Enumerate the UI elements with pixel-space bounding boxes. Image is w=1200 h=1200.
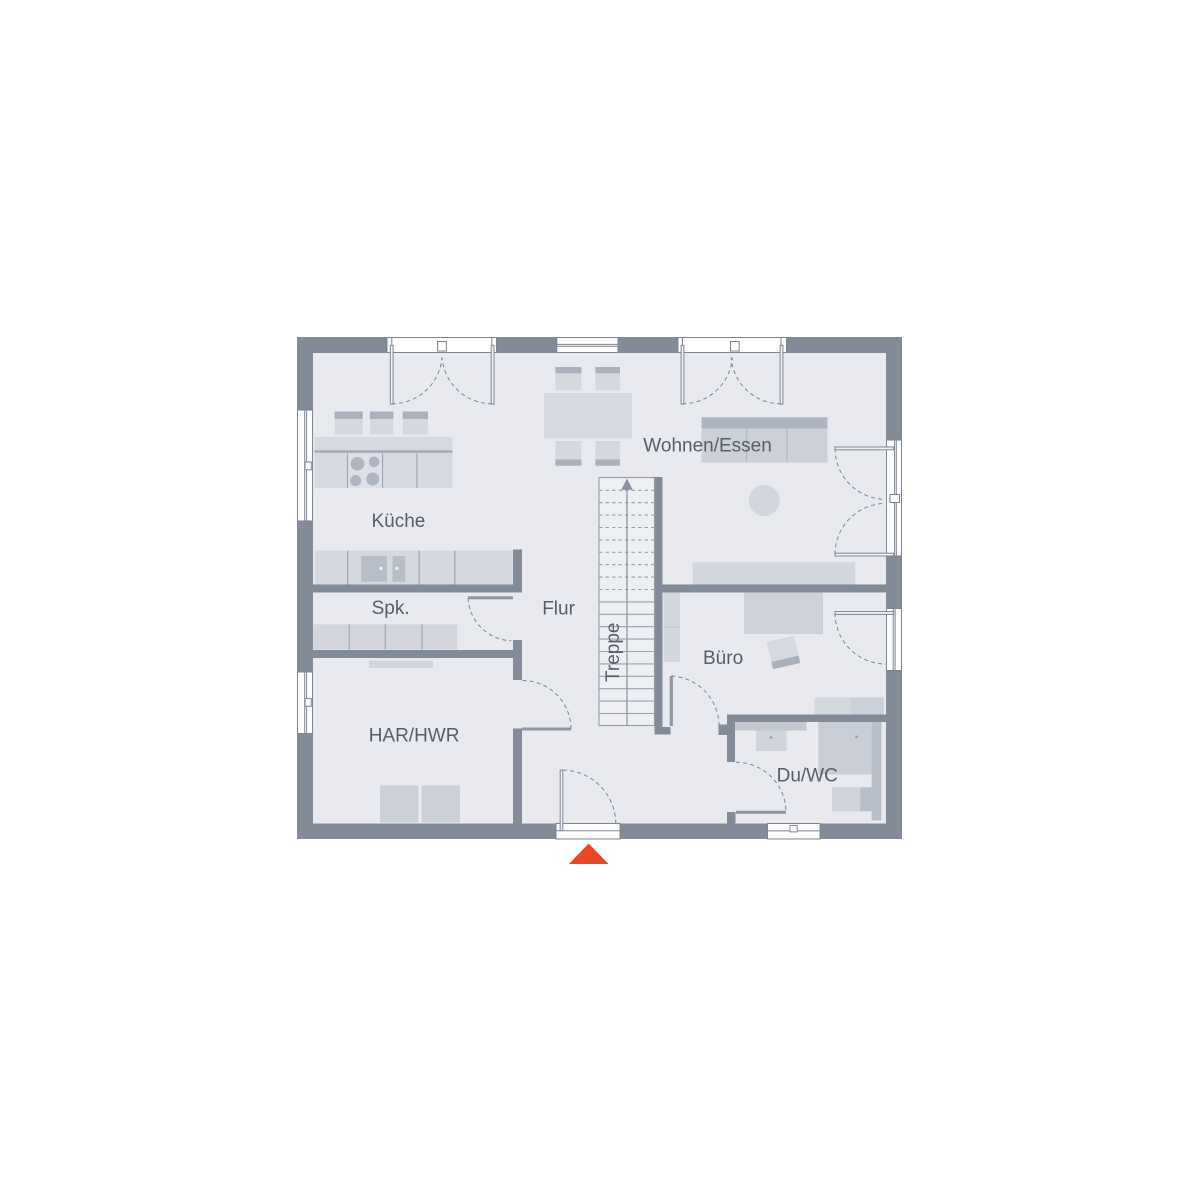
svg-text:Küche: Küche xyxy=(372,511,426,532)
svg-text:Spk.: Spk. xyxy=(372,598,410,619)
svg-text:Wohnen/Essen: Wohnen/Essen xyxy=(643,436,772,457)
svg-text:Büro: Büro xyxy=(703,648,743,669)
svg-text:Du/WC: Du/WC xyxy=(777,766,838,787)
svg-text:Treppe: Treppe xyxy=(603,623,624,683)
svg-text:Flur: Flur xyxy=(542,598,575,619)
svg-text:HAR/HWR: HAR/HWR xyxy=(369,726,460,747)
